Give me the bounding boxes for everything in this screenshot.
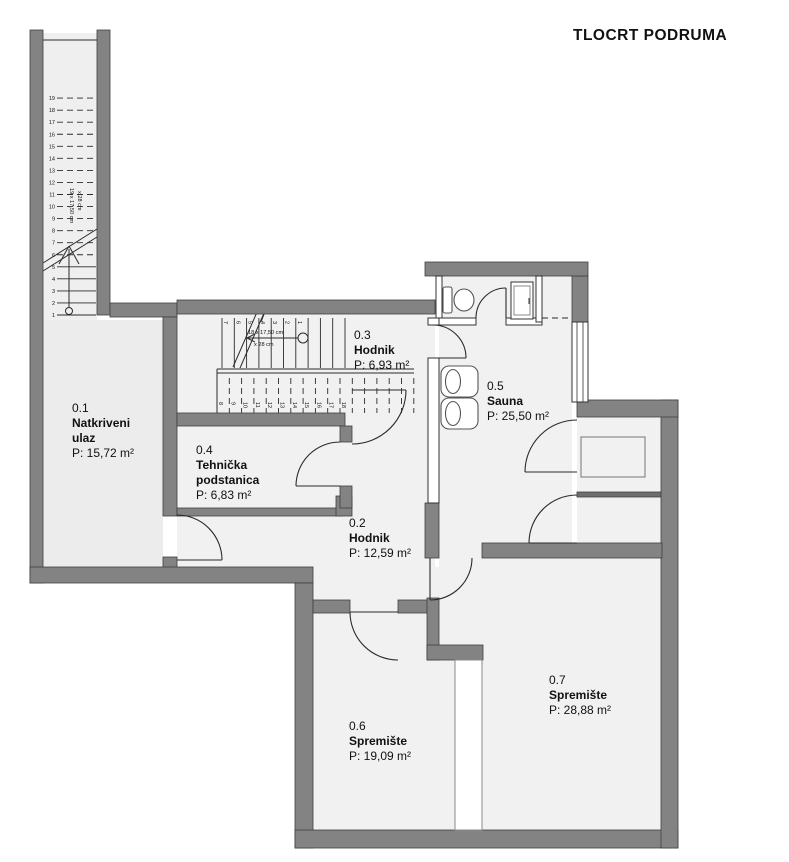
- washbasin-fixture-2: [441, 398, 478, 429]
- svg-text:10: 10: [242, 402, 248, 408]
- svg-text:5: 5: [52, 265, 55, 271]
- svg-text:3: 3: [271, 321, 277, 324]
- svg-text:14: 14: [291, 402, 297, 408]
- internal-stair-dimension: 18 x 17,50 cm: [248, 330, 283, 336]
- partition-06-07: [455, 660, 482, 830]
- room-label-0-1: 0.1 Natkriveni ulaz P: 15,72 m²: [72, 401, 148, 461]
- room-name: Natkriveni ulaz: [72, 416, 148, 446]
- page-title: TLOCRT PODRUMA: [573, 27, 727, 45]
- svg-text:9: 9: [229, 402, 235, 405]
- svg-text:11: 11: [49, 193, 55, 199]
- svg-text:12: 12: [49, 180, 55, 186]
- room-area: P: 6,93 m²: [354, 358, 449, 373]
- room-name: Hodnik: [354, 343, 449, 358]
- svg-text:19: 19: [49, 96, 55, 102]
- svg-text:13: 13: [279, 402, 285, 408]
- svg-text:15: 15: [303, 402, 309, 408]
- svg-text:8: 8: [217, 402, 223, 405]
- room-area: P: 12,59 m²: [349, 546, 444, 561]
- room-id: 0.4: [196, 443, 272, 458]
- svg-text:12: 12: [266, 402, 272, 408]
- svg-text:7: 7: [222, 321, 228, 324]
- svg-text:6: 6: [234, 321, 240, 324]
- room-id: 0.7: [549, 673, 644, 688]
- room-area: P: 19,09 m²: [349, 749, 444, 764]
- svg-text:2: 2: [52, 301, 55, 307]
- svg-text:10: 10: [49, 205, 55, 211]
- svg-text:14: 14: [49, 156, 55, 162]
- svg-text:15: 15: [49, 144, 55, 150]
- room-label-0-6: 0.6 Spremište P: 19,09 m²: [349, 719, 444, 764]
- room-label-0-7: 0.7 Spremište P: 28,88 m²: [549, 673, 644, 718]
- floor-plan: 12345678910111213141516171819 1234567891…: [0, 0, 789, 862]
- room-id: 0.3: [354, 328, 449, 343]
- internal-stair-tread: x 28 cm: [254, 342, 274, 348]
- svg-text:3: 3: [52, 289, 55, 295]
- svg-text:8: 8: [52, 229, 55, 235]
- room-id: 0.6: [349, 719, 444, 734]
- svg-text:7: 7: [52, 241, 55, 247]
- room-name: Sauna: [487, 394, 582, 409]
- entrance-stair-tread: x 28 cm: [76, 191, 82, 211]
- shower-cabinet-fixture: [511, 282, 533, 319]
- room-area: P: 25,50 m²: [487, 409, 582, 424]
- svg-text:11: 11: [254, 402, 260, 408]
- svg-text:1: 1: [296, 321, 302, 324]
- room-id: 0.2: [349, 516, 444, 531]
- room-name: Hodnik: [349, 531, 444, 546]
- svg-text:2: 2: [284, 321, 290, 324]
- room-area: P: 6,83 m²: [196, 488, 272, 503]
- entrance-stair-dimension: 19 x 17,50 cm: [68, 188, 74, 223]
- room-name: Spremište: [349, 734, 444, 749]
- room-area: P: 15,72 m²: [72, 446, 148, 461]
- room-name: Spremište: [549, 688, 644, 703]
- svg-text:13: 13: [49, 168, 55, 174]
- room-name: Tehnička podstanica: [196, 458, 272, 488]
- svg-text:18: 18: [49, 108, 55, 114]
- room-id: 0.1: [72, 401, 148, 416]
- svg-text:18: 18: [340, 402, 346, 408]
- room-label-0-4: 0.4 Tehnička podstanica P: 6,83 m²: [196, 443, 272, 503]
- toilet-fixture: [443, 287, 474, 313]
- svg-text:17: 17: [49, 120, 55, 126]
- room-label-0-3: 0.3 Hodnik P: 6,93 m²: [354, 328, 449, 373]
- room-id: 0.5: [487, 379, 582, 394]
- svg-text:16: 16: [315, 402, 321, 408]
- room-area: P: 28,88 m²: [549, 703, 644, 718]
- svg-text:16: 16: [49, 132, 55, 138]
- svg-text:1: 1: [52, 313, 55, 319]
- svg-text:17: 17: [328, 402, 334, 408]
- room-label-0-5: 0.5 Sauna P: 25,50 m²: [487, 379, 582, 424]
- svg-text:9: 9: [52, 217, 55, 223]
- room-label-0-2: 0.2 Hodnik P: 12,59 m²: [349, 516, 444, 561]
- svg-text:4: 4: [52, 277, 55, 283]
